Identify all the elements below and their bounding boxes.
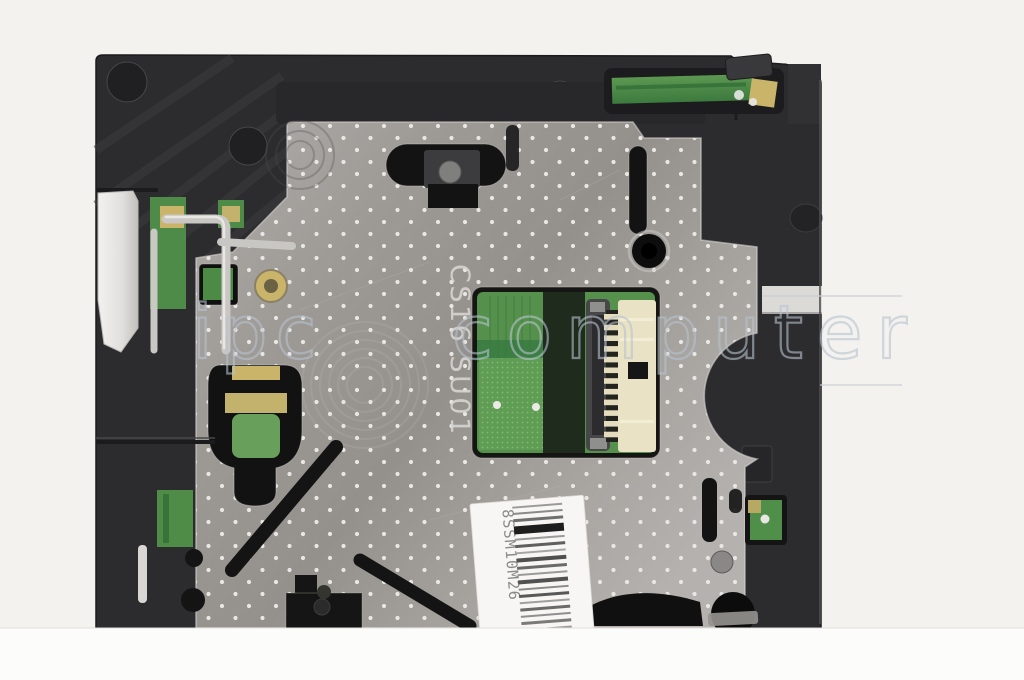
gold-clip-body (225, 393, 287, 413)
frame-corner-block (788, 64, 821, 124)
product-photo-page: CS16 SU01 (0, 0, 1024, 680)
solder-blob (749, 98, 757, 106)
vertical-slot (629, 146, 647, 234)
notch-bottom-right (729, 489, 742, 513)
bare-metal-strip (98, 191, 138, 352)
latch-tab (590, 438, 607, 449)
right-pcb-window (745, 495, 787, 545)
solder-blob (734, 90, 744, 100)
latch-tab-top (725, 54, 773, 81)
bottom-crop-band (0, 628, 1024, 680)
small-slot (506, 125, 519, 171)
frame-recess-oval (790, 204, 822, 232)
pcb-test-point (493, 401, 501, 409)
edge-scallop (185, 549, 203, 567)
clip-button (439, 161, 461, 183)
bottom-left-pcb (157, 490, 193, 547)
clip-notch (428, 184, 478, 208)
vertical-slot-bottom-right (702, 478, 717, 542)
screw-head (711, 551, 733, 573)
pcb-test-point (532, 403, 540, 411)
bottom-left-pcb-trace (163, 494, 169, 543)
keyhole-pcb (232, 414, 280, 458)
watermark-word2: computer (452, 290, 921, 376)
watermark: ipc computer (192, 290, 921, 385)
touchpad-assembly-photo: CS16 SU01 (0, 0, 1024, 680)
round-hole-center (641, 243, 657, 259)
dark-spot (317, 585, 331, 599)
edge-scallop (181, 588, 205, 612)
ground-wire-h (221, 242, 292, 246)
white-rod (138, 545, 147, 603)
watermark-word1: ipc (192, 290, 324, 376)
